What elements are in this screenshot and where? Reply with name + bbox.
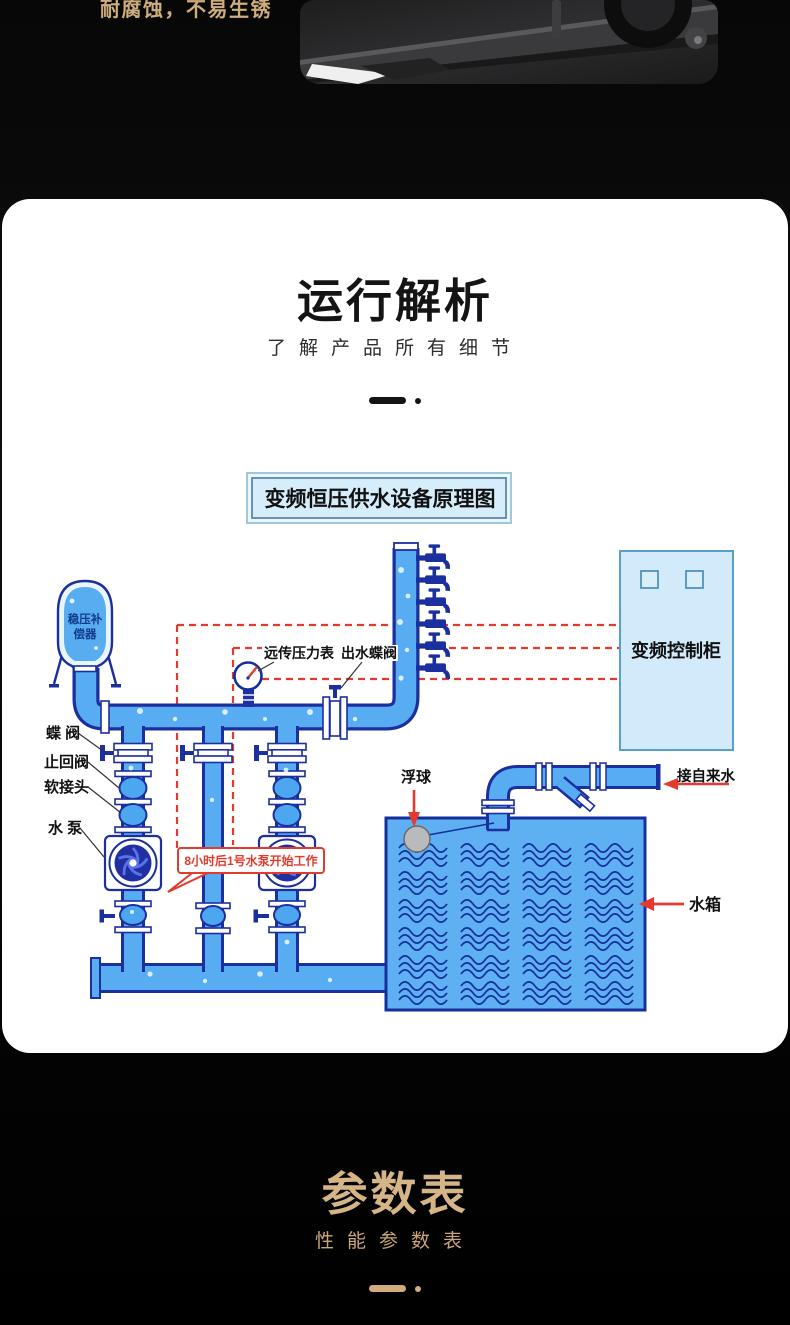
divider-dot-icon <box>415 398 421 404</box>
product-detail-page: { "hero": { "slogan": "耐腐蚀，不易生锈" }, "ana… <box>0 0 790 1325</box>
manifold-end-flange <box>91 958 100 998</box>
label-cabinet: 变频控制柜 <box>631 640 721 661</box>
label-tap-water: 接自来水 <box>677 767 735 785</box>
diagram-title: 变频恒压供水设备原理图 <box>265 487 496 511</box>
label-water-tank: 水箱 <box>689 895 721 914</box>
label-remote-gauge: 远传压力表 <box>264 645 335 661</box>
header-flange <box>101 701 109 733</box>
analysis-title: 运行解析 <box>0 265 790 331</box>
label-compensator-line1: 稳压补 <box>68 612 103 626</box>
label-pump: 水 泵 <box>48 819 82 837</box>
label-soft-joint: 软接头 <box>44 778 89 796</box>
analysis-divider <box>0 397 790 404</box>
label-butterfly-valve: 蝶 阀 <box>46 724 80 742</box>
divider-bar-icon <box>369 397 406 404</box>
schematic-diagram: 变频恒压供水设备原理图 稳压补 偿器 <box>0 460 790 1020</box>
corrosion-slogan: 耐腐蚀，不易生锈 <box>100 0 272 21</box>
pump-branch-right <box>254 744 316 933</box>
params-subtitle: 性能参数表 <box>0 1226 790 1253</box>
label-outlet-valve: 出水蝶阀 <box>341 645 397 661</box>
diagram-title-box: 变频恒压供水设备原理图 <box>247 473 511 523</box>
gauge-valve-labels: 远传压力表 出水蝶阀 <box>258 645 398 688</box>
divider-dot-icon <box>415 1286 421 1292</box>
analysis-subtitle: 了解产品所有细节 <box>0 333 790 360</box>
riser-taps <box>416 544 450 679</box>
pump-branch-left <box>100 744 162 933</box>
params-title: 参数表 <box>0 1158 790 1224</box>
product-photo <box>300 0 718 84</box>
label-compensator-line2: 偿器 <box>74 627 97 641</box>
riser-cap <box>394 543 418 550</box>
params-divider <box>0 1285 790 1292</box>
label-float-ball: 浮球 <box>401 768 432 786</box>
vfd-control-cabinet: 变频控制柜 <box>620 551 733 750</box>
pressure-gauge <box>235 663 262 708</box>
label-callout: 8小时后1号水泵开始工作 <box>184 853 317 868</box>
compensator-tank: 稳压补 偿器 <box>49 581 121 688</box>
label-check-valve: 止回阀 <box>44 753 89 771</box>
divider-bar-icon <box>369 1285 406 1292</box>
product-photo-art <box>300 0 718 84</box>
outlet-butterfly-valve <box>323 685 347 739</box>
